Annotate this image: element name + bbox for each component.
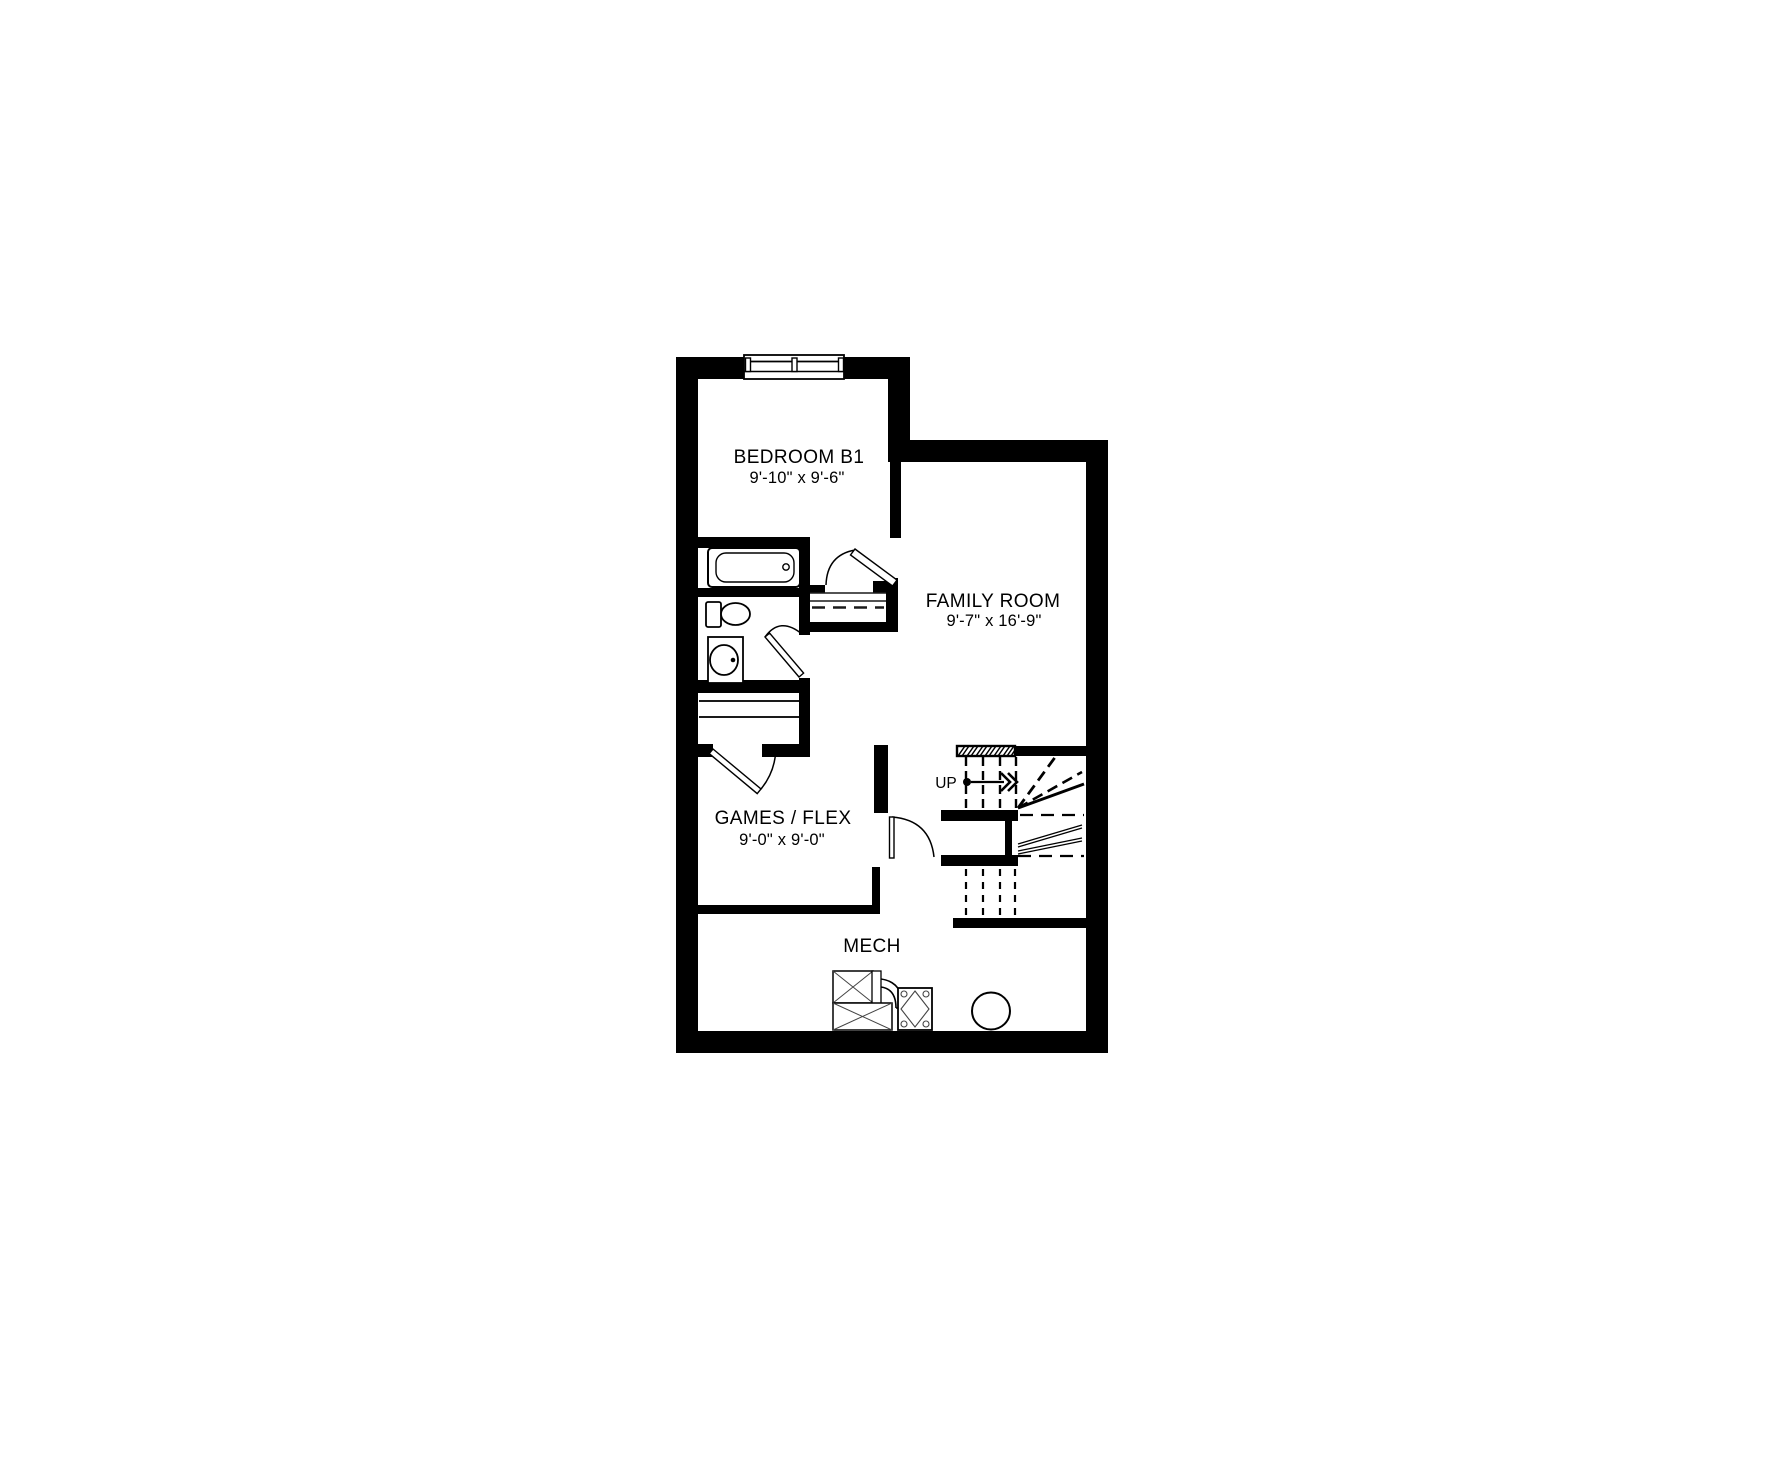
stair-winders — [1018, 756, 1084, 856]
hrv-unit-icon — [898, 988, 932, 1030]
hall-bulkhead — [810, 593, 886, 608]
wall-under-stair-bar — [953, 918, 1086, 928]
wall-family-games — [874, 745, 888, 813]
hrv-bolt-2 — [923, 991, 929, 997]
bathroom-door — [765, 626, 804, 677]
bedroom-door — [826, 549, 897, 586]
up-arrow-origin-dot — [963, 778, 971, 786]
games-room-door — [890, 817, 935, 858]
bathroom-door-leaf — [765, 633, 804, 677]
hrv-bolt-4 — [923, 1021, 929, 1027]
family-room-dims: 9'-7" x 16'-9" — [946, 612, 1041, 630]
wall-games-stub — [872, 867, 880, 907]
wall-left — [676, 357, 698, 1053]
games-door-leaf — [890, 817, 895, 858]
sink-faucet — [731, 658, 736, 663]
bathtub-icon — [708, 548, 800, 587]
bedroom-dims: 9'-10" x 9'-6" — [749, 469, 844, 487]
water-heater-tank-icon — [972, 993, 1010, 1030]
wall-bedroom-family — [890, 462, 901, 538]
bedroom-door-leaf — [851, 549, 898, 586]
winder-ray-solid — [1018, 784, 1084, 808]
window-mullion-left — [746, 358, 751, 372]
toilet-tank — [706, 602, 721, 627]
stair-up-arrow — [963, 773, 1017, 791]
wall-stair-landing-connector — [1005, 821, 1012, 855]
hrv-bolt-1 — [901, 991, 907, 997]
wall-stair-landing-lower — [941, 855, 1018, 866]
closet-shelves — [699, 701, 799, 717]
winder-nosing-2b — [1018, 841, 1082, 854]
furnace-side-box — [872, 971, 881, 1005]
wall-right — [1086, 440, 1108, 1053]
stair-hatch-strip — [957, 746, 1015, 756]
floor-plan-page: BEDROOM B1 9'-10" x 9'-6" FAMILY ROOM 9'… — [0, 0, 1780, 1480]
sink-vanity-icon — [708, 637, 743, 683]
stairs-up-label: UP — [935, 775, 957, 792]
wall-stair-landing-upper — [941, 810, 1018, 821]
games-door-swing-arc — [892, 817, 934, 857]
wall-family-wing-top — [888, 440, 1108, 462]
mech-label: MECH — [843, 936, 901, 957]
furnace-icon — [833, 971, 903, 1030]
winder-nosing-1a — [1018, 825, 1082, 844]
bedroom-label: BEDROOM B1 — [734, 447, 865, 468]
bathtub-drain — [783, 564, 789, 570]
wall-closet-bottom-right — [762, 744, 810, 757]
hrv-bolt-3 — [901, 1021, 907, 1027]
wall-games-bottom — [697, 905, 880, 914]
window-mullion-right — [839, 358, 844, 372]
staircase — [957, 746, 1084, 916]
toilet-bowl — [721, 603, 750, 625]
wall-hall-left-stub — [800, 585, 825, 593]
window-icon — [744, 355, 844, 379]
family-room-label: FAMILY ROOM — [926, 591, 1061, 612]
wall-bottom — [676, 1031, 1108, 1053]
toilet-icon — [706, 602, 750, 627]
wall-stair-top — [1015, 746, 1086, 756]
closet-door-leaf — [709, 749, 761, 794]
wall-bedroom-bottom — [697, 537, 810, 548]
winder-ray-dashed-2 — [1018, 772, 1082, 808]
games-flex-label: GAMES / FLEX — [715, 808, 852, 829]
wall-hall-bottom-band — [808, 622, 898, 632]
games-flex-dims: 9'-0" x 9'-0" — [739, 831, 825, 849]
floor-plan-drawing: BEDROOM B1 9'-10" x 9'-6" FAMILY ROOM 9'… — [0, 0, 1780, 1480]
wall-tub-foot — [697, 588, 810, 597]
window-mullion-center — [792, 358, 797, 372]
stair-understair-dashes — [966, 869, 1015, 916]
